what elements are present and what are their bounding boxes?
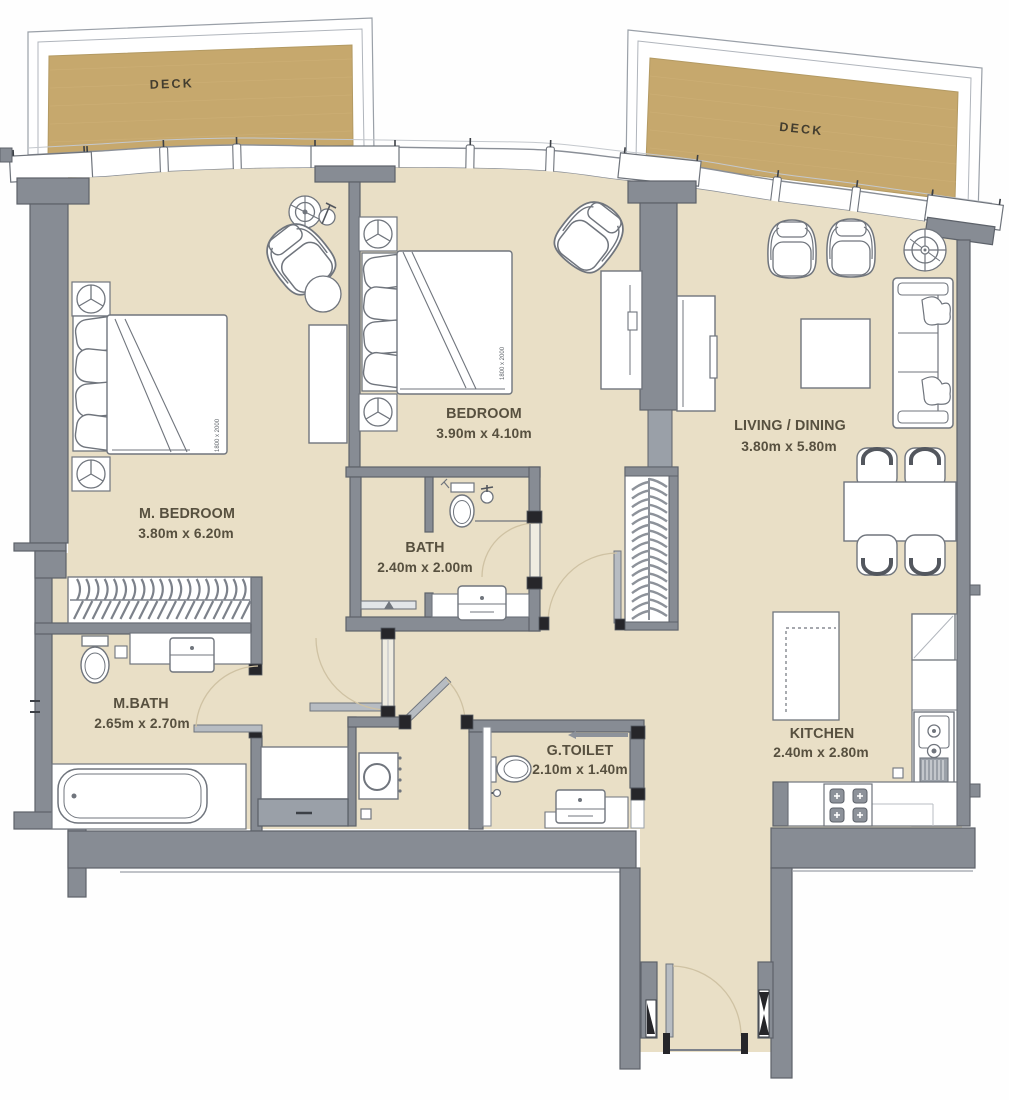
svg-text:G.TOILET: G.TOILET: [547, 743, 614, 759]
svg-text:2.10m x 1.40m: 2.10m x 1.40m: [532, 762, 628, 777]
svg-text:LIVING / DINING: LIVING / DINING: [734, 418, 846, 434]
svg-text:KITCHEN: KITCHEN: [790, 726, 855, 742]
svg-text:M. BEDROOM: M. BEDROOM: [139, 506, 235, 522]
svg-text:3.80m x 6.20m: 3.80m x 6.20m: [138, 526, 234, 541]
svg-text:1800 x 2000: 1800 x 2000: [500, 346, 506, 380]
svg-text:2.65m x 2.70m: 2.65m x 2.70m: [94, 716, 190, 731]
svg-text:2.40m x 2.80m: 2.40m x 2.80m: [773, 745, 869, 760]
svg-text:2.40m x 2.00m: 2.40m x 2.00m: [377, 560, 473, 575]
svg-text:M.BATH: M.BATH: [113, 696, 168, 712]
svg-text:BEDROOM: BEDROOM: [446, 406, 522, 422]
svg-text:BATH: BATH: [405, 540, 444, 556]
svg-text:DECK: DECK: [150, 76, 195, 92]
svg-text:1800 x 2000: 1800 x 2000: [215, 418, 221, 452]
svg-text:3.80m x 5.80m: 3.80m x 5.80m: [741, 439, 837, 454]
svg-text:3.90m x 4.10m: 3.90m x 4.10m: [436, 426, 532, 441]
